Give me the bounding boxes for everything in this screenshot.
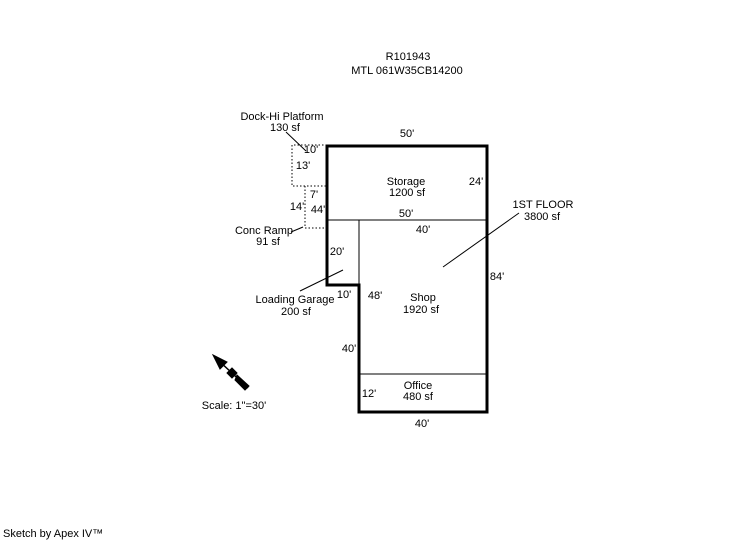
north-arrow-icon <box>213 355 249 390</box>
dim-office-west: 12' <box>362 388 376 400</box>
dim-storage-south: 50' <box>399 208 413 220</box>
dim-ramp-north: 7' <box>310 189 318 201</box>
first-floor-area: 3800 sf <box>524 211 560 223</box>
dim-east-wall: 84' <box>490 271 504 283</box>
dim-dock-north: 10' <box>304 144 318 156</box>
storage-area: 1200 sf <box>389 187 425 199</box>
sketch-drawing <box>0 0 746 547</box>
first-floor-label-leader <box>443 213 519 267</box>
scale-label: Scale: 1"=30' <box>202 400 266 412</box>
parcel-id: MTL 061W35CB14200 <box>351 65 463 77</box>
record-id: R101943 <box>386 51 431 63</box>
dim-shop-north: 40' <box>416 224 430 236</box>
dim-office-south: 40' <box>415 418 429 430</box>
garage-label-leader <box>300 270 343 291</box>
dim-shop-west: 48' <box>368 290 382 302</box>
dim-west-lower-wall: 40' <box>342 343 356 355</box>
dim-garage-south: 10' <box>337 289 351 301</box>
shop-name: Shop <box>410 292 436 304</box>
sketch-page: R101943 MTL 061W35CB14200 Dock-Hi Platfo… <box>0 0 746 547</box>
footer-credit: Sketch by Apex IV™ <box>3 528 103 540</box>
office-area: 480 sf <box>403 391 433 403</box>
first-floor-name: 1ST FLOOR <box>513 199 574 211</box>
loading-garage-name: Loading Garage <box>256 294 335 306</box>
dim-garage-west: 20' <box>330 246 344 258</box>
dim-dock-west: 13' <box>296 160 310 172</box>
shop-area: 1920 sf <box>403 304 439 316</box>
conc-ramp-area: 91 sf <box>256 236 280 248</box>
dim-storage-north: 50' <box>400 128 414 140</box>
dim-ramp-west: 14' <box>290 201 304 213</box>
dock-platform-area: 130 sf <box>270 122 300 134</box>
dim-west-wall: 44' <box>311 204 325 216</box>
loading-garage-area: 200 sf <box>281 306 311 318</box>
dim-storage-east: 24' <box>469 176 483 188</box>
